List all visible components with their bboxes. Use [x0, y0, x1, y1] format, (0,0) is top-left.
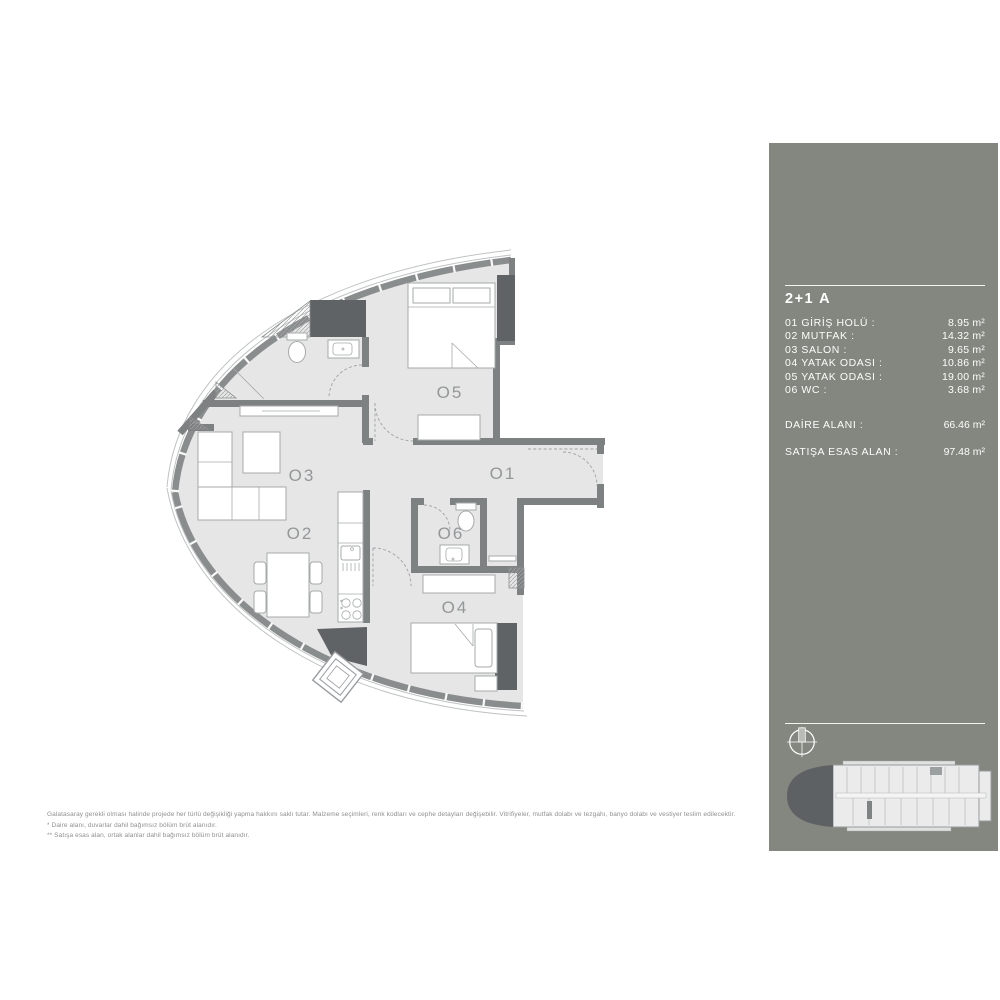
room-label-01: O1	[490, 464, 517, 483]
area-row: 06 WC : 3.68 m²	[785, 384, 985, 397]
area-row: 01 GİRİŞ HOLÜ : 8.95 m²	[785, 317, 985, 330]
toilet-tank	[287, 333, 307, 340]
pillow	[453, 288, 490, 303]
room-name: 03 SALON :	[785, 344, 847, 356]
nightstand	[475, 676, 497, 691]
pillow	[475, 629, 492, 667]
room-name: 06 WC :	[785, 384, 827, 396]
total-value: 66.46 m²	[944, 419, 985, 431]
shaft-top-right	[497, 275, 515, 341]
toilet-bowl	[289, 342, 306, 363]
divider	[785, 723, 985, 724]
room-area: 8.95 m²	[948, 317, 985, 329]
apartment-area-total: DAİRE ALANI : 66.46 m²	[785, 419, 985, 431]
room-label-05: O5	[437, 383, 464, 402]
total-label: DAİRE ALANI :	[785, 419, 863, 431]
sales-area-total: SATIŞA ESAS ALAN : 97.48 m²	[785, 446, 985, 458]
chair	[310, 591, 322, 613]
core-mark	[867, 801, 872, 819]
north-needle	[799, 728, 806, 742]
room-name: 05 YATAK ODASI :	[785, 371, 883, 383]
chair	[254, 591, 266, 613]
room-area-list: 01 GİRİŞ HOLÜ : 8.95 m² 02 MUTFAK : 14.3…	[785, 317, 985, 397]
pillow	[413, 288, 450, 303]
disclaimer-line: Galatasaray gerekli olması halinde proje…	[47, 811, 735, 818]
room-label-04: O4	[442, 598, 469, 617]
room-area: 3.68 m²	[948, 384, 985, 396]
unit-location-highlight	[787, 765, 833, 827]
room-name: 02 MUTFAK :	[785, 330, 855, 342]
disclaimer-line: ** Satışa esas alan, ortak alanlar dahil…	[47, 832, 735, 839]
divider	[785, 285, 985, 286]
area-row: 05 YATAK ODASI : 19.00 m²	[785, 371, 985, 384]
armchair	[243, 432, 280, 473]
floor-slab	[175, 260, 603, 706]
room-label-03: O3	[289, 466, 316, 485]
room-name: 04 YATAK ODASI :	[785, 357, 883, 369]
floor-plan-page: { "colors": { "panel": "#84877f", "wall"…	[0, 0, 1000, 1000]
room-area: 19.00 m²	[942, 371, 985, 383]
room-area: 9.65 m²	[948, 344, 985, 356]
disclaimer: Galatasaray gerekli olması halinde proje…	[47, 811, 735, 839]
bench	[418, 415, 480, 440]
shaft-bedroom04	[495, 623, 517, 690]
apartment-floor-plan: O1 O2 O3 O4 O5 O6	[158, 236, 774, 732]
shaft-bathroom	[310, 300, 366, 337]
room-label-02: O2	[287, 524, 314, 543]
chair	[254, 562, 266, 584]
total-label: SATIŞA ESAS ALAN :	[785, 446, 898, 458]
room-label-06: O6	[438, 524, 465, 543]
shaft-hatched	[509, 568, 524, 588]
chair	[310, 562, 322, 584]
dining-table	[267, 553, 309, 617]
room-name: 01 GİRİŞ HOLÜ :	[785, 317, 875, 329]
area-row: 04 YATAK ODASI : 10.86 m²	[785, 357, 985, 370]
sofa-seat	[198, 487, 286, 520]
core-mark	[930, 767, 942, 775]
area-row: 02 MUTFAK : 14.32 m²	[785, 330, 985, 343]
building-key-plan	[783, 753, 995, 841]
dresser	[423, 575, 495, 593]
total-value: 97.48 m²	[944, 446, 985, 458]
unit-type-title: 2+1 A	[785, 291, 831, 307]
toilet-tank	[456, 503, 476, 510]
info-panel: 2+1 A 01 GİRİŞ HOLÜ : 8.95 m² 02 MUTFAK …	[769, 143, 998, 851]
room-area: 14.32 m²	[942, 330, 985, 342]
disclaimer-line: * Daire alanı, duvarlar dahil bağımsız b…	[47, 822, 735, 829]
closet-shelf	[489, 556, 516, 561]
area-row: 03 SALON : 9.65 m²	[785, 344, 985, 357]
room-area: 10.86 m²	[942, 357, 985, 369]
